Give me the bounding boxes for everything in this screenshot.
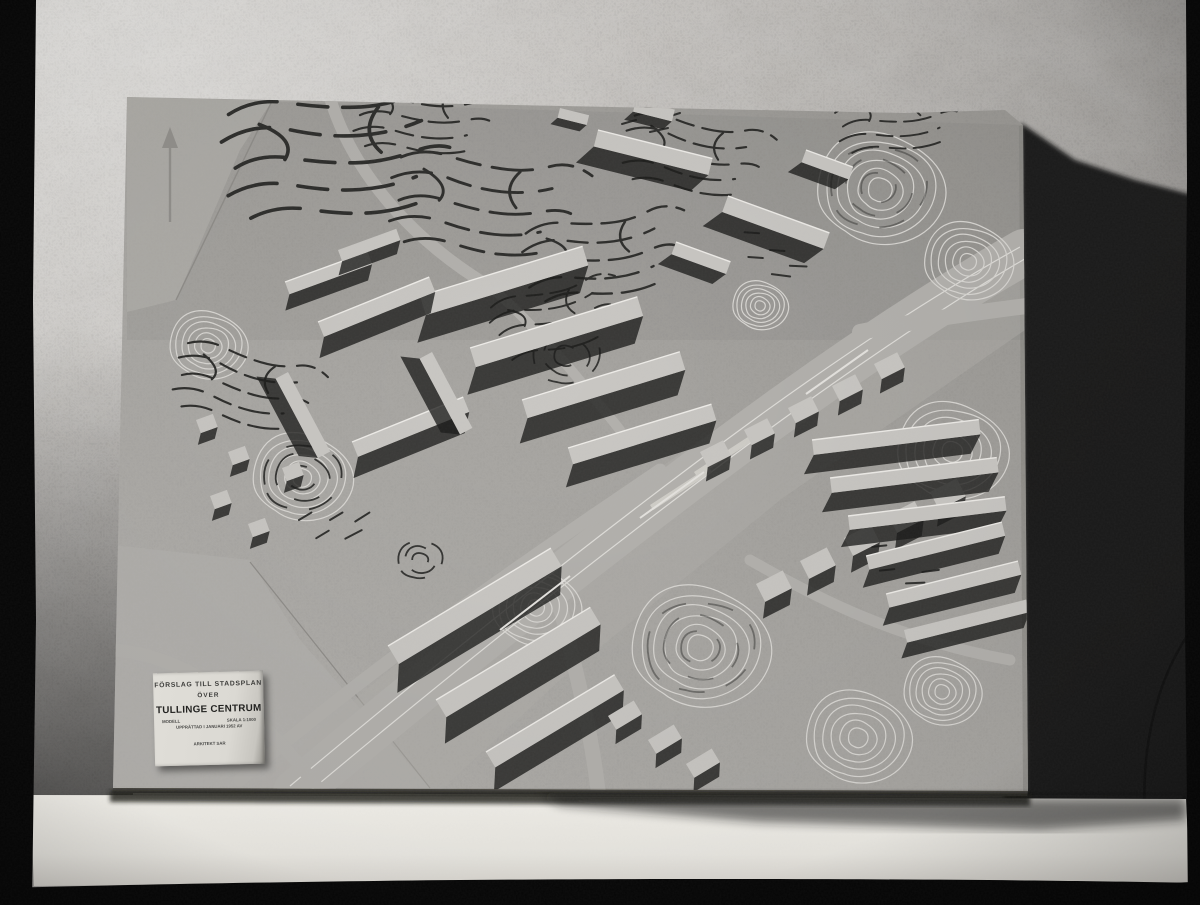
vignette (0, 0, 1200, 905)
photograph: FÖRSLAG TILL STADSPLAN ÖVER TULLINGE CEN… (0, 0, 1200, 905)
photo-scene (0, 0, 1200, 905)
label-title: TULLINGE CENTRUM (154, 703, 264, 717)
label-heading: FÖRSLAG TILL STADSPLAN (153, 680, 263, 690)
label-credit: ARKITEKT SAR (155, 740, 265, 748)
label-over: ÖVER (153, 691, 263, 701)
label-card: FÖRSLAG TILL STADSPLAN ÖVER TULLINGE CEN… (153, 671, 265, 767)
label-meta-model: MODELL (162, 719, 180, 724)
label-meta-scale: SKALA 1:1000 (227, 717, 256, 723)
